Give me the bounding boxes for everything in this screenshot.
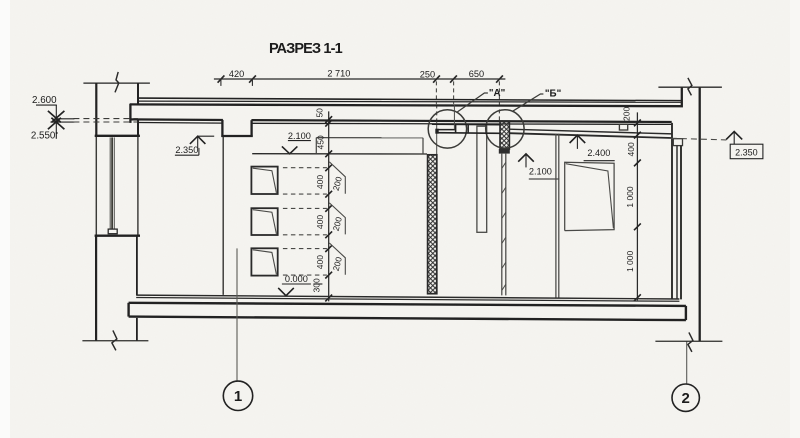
svg-text:450: 450 xyxy=(316,135,326,149)
svg-text:400: 400 xyxy=(315,215,325,229)
svg-text:420: 420 xyxy=(229,69,244,79)
svg-text:400: 400 xyxy=(315,175,325,189)
svg-text:50: 50 xyxy=(315,108,325,118)
svg-text:0.000: 0.000 xyxy=(285,274,308,284)
svg-text:200: 200 xyxy=(621,107,631,121)
svg-text:"Б": "Б" xyxy=(545,89,561,100)
svg-text:250: 250 xyxy=(420,69,435,79)
svg-text:300: 300 xyxy=(311,278,321,292)
svg-text:2.400: 2.400 xyxy=(587,148,610,158)
svg-text:2.100: 2.100 xyxy=(529,167,552,177)
svg-text:РАЗРЕЗ 1-1: РАЗРЕЗ 1-1 xyxy=(269,41,343,57)
svg-text:2.100: 2.100 xyxy=(288,131,311,141)
svg-text:2: 2 xyxy=(682,390,690,407)
svg-text:650: 650 xyxy=(469,69,484,79)
svg-text:2.350: 2.350 xyxy=(735,147,758,157)
svg-text:1 000: 1 000 xyxy=(625,250,635,272)
svg-text:400: 400 xyxy=(315,255,325,269)
svg-text:400: 400 xyxy=(626,142,636,156)
svg-text:2.550: 2.550 xyxy=(31,131,56,142)
svg-text:1 000: 1 000 xyxy=(625,186,635,208)
svg-text:2.600: 2.600 xyxy=(32,95,57,106)
svg-text:2 710: 2 710 xyxy=(327,68,350,78)
svg-text:1: 1 xyxy=(234,388,242,405)
svg-text:"А": "А" xyxy=(489,88,505,99)
svg-text:2.350: 2.350 xyxy=(175,145,198,155)
